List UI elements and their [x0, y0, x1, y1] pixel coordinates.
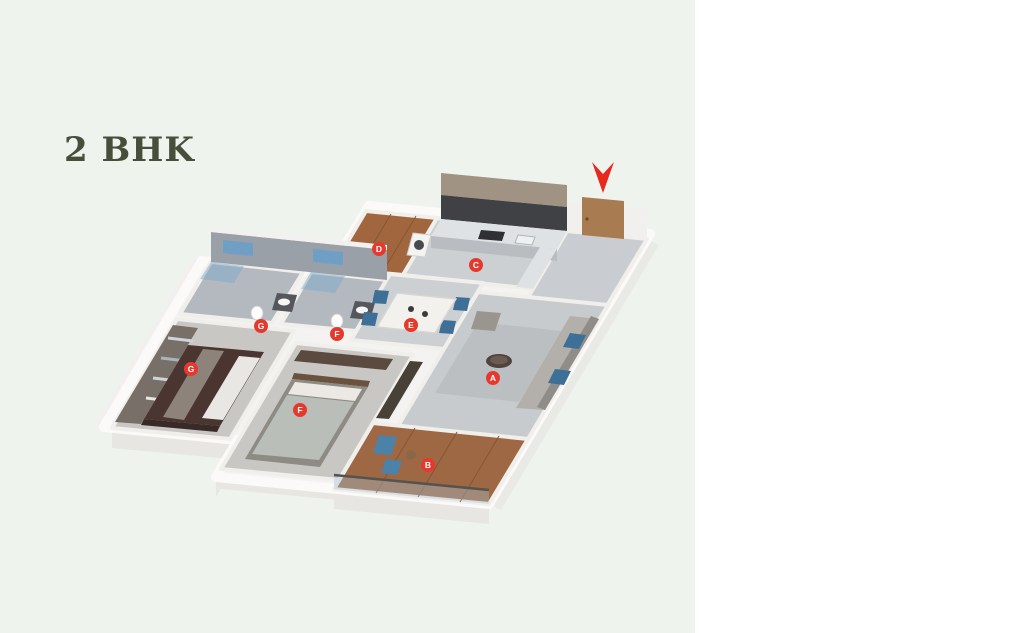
svg-text:B: B: [425, 460, 431, 470]
marker-terrace: B: [421, 458, 435, 472]
plan-panel: 2 BHK: [0, 0, 695, 633]
floor-plan-3d: A B C D E F F G G: [85, 148, 675, 565]
marker-bath-1: G: [254, 319, 268, 333]
entrance-door: [582, 197, 624, 239]
svg-text:F: F: [297, 405, 302, 415]
marker-bath-2: F: [330, 327, 344, 341]
svg-text:D: D: [376, 244, 382, 254]
info-panel: Living A Terrace B Kitchen C Dry Terrace…: [695, 0, 1027, 633]
svg-text:F: F: [334, 329, 339, 339]
marker-bedroom-2: F: [293, 403, 307, 417]
floor-plan-page: 2 BHK: [0, 0, 1027, 633]
entrance-arrow-icon: [592, 162, 614, 193]
marker-kitchen: C: [469, 258, 483, 272]
svg-text:G: G: [258, 321, 265, 331]
coffee-table: [486, 354, 512, 368]
marker-bedroom-1: G: [184, 362, 198, 376]
svg-text:G: G: [188, 364, 195, 374]
svg-text:E: E: [408, 320, 414, 330]
svg-text:C: C: [473, 260, 479, 270]
marker-dry-terrace: D: [372, 242, 386, 256]
marker-dining: E: [404, 318, 418, 332]
svg-text:A: A: [490, 373, 496, 383]
marker-living: A: [486, 371, 500, 385]
